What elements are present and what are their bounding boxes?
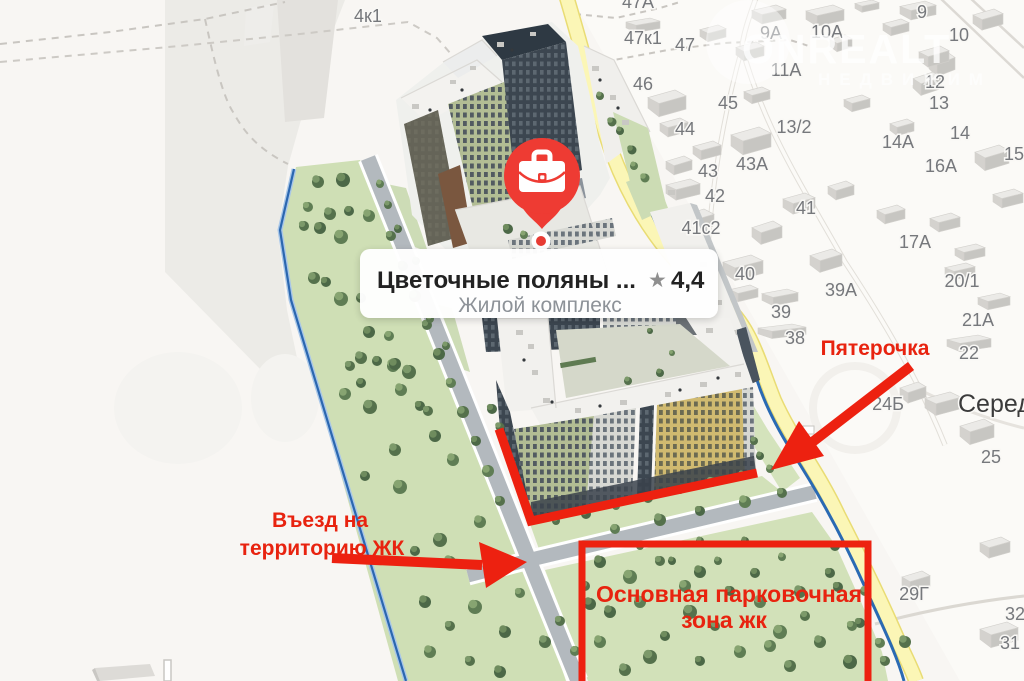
svg-text:13/2: 13/2	[776, 117, 811, 137]
svg-text:4к1: 4к1	[354, 6, 382, 26]
svg-text:территорию ЖК: территорию ЖК	[240, 537, 405, 560]
svg-text:41: 41	[796, 198, 816, 218]
svg-text:43А: 43А	[736, 154, 768, 174]
svg-text:10: 10	[949, 25, 969, 45]
svg-text:НЕДВИЖИМ: НЕДВИЖИМ	[818, 70, 992, 89]
svg-text:29Г: 29Г	[899, 584, 929, 604]
svg-text:Середне: Середне	[958, 390, 1024, 418]
svg-text:42: 42	[705, 186, 725, 206]
svg-text:зона жк: зона жк	[681, 607, 767, 633]
svg-text:15: 15	[1004, 144, 1024, 164]
svg-text:31: 31	[1000, 633, 1020, 653]
svg-text:13: 13	[929, 93, 949, 113]
svg-text:9: 9	[917, 2, 927, 22]
svg-text:41с2: 41с2	[681, 218, 720, 238]
svg-text:25: 25	[981, 447, 1001, 467]
svg-text:Жилой комплекс: Жилой комплекс	[458, 294, 622, 317]
svg-text:43: 43	[698, 161, 718, 181]
svg-text:39: 39	[771, 302, 791, 322]
svg-text:46: 46	[633, 74, 653, 94]
svg-text:17А: 17А	[899, 232, 931, 252]
svg-text:14: 14	[950, 123, 970, 143]
svg-text:Въезд на: Въезд на	[272, 509, 368, 532]
svg-text:21А: 21А	[962, 310, 994, 330]
svg-text:38: 38	[785, 328, 805, 348]
svg-text:16А: 16А	[925, 156, 957, 176]
svg-text:14А: 14А	[882, 132, 914, 152]
svg-text:ONREALT: ONREALT	[742, 26, 951, 72]
svg-text:40: 40	[735, 264, 755, 284]
svg-text:Цветочные поляны ...: Цветочные поляны ...	[377, 267, 636, 294]
svg-text:32: 32	[1005, 604, 1024, 624]
svg-text:47к1: 47к1	[624, 28, 662, 48]
svg-text:Пятерочка: Пятерочка	[821, 337, 930, 360]
svg-text:20/1: 20/1	[944, 271, 979, 291]
svg-text:44: 44	[675, 119, 695, 139]
svg-text:47: 47	[675, 35, 695, 55]
svg-text:★: ★	[648, 269, 667, 292]
svg-text:47А: 47А	[622, 0, 654, 12]
svg-text:Основная парковочная: Основная парковочная	[596, 581, 862, 607]
svg-text:22: 22	[959, 343, 979, 363]
svg-text:45: 45	[718, 93, 738, 113]
svg-text:4,4: 4,4	[671, 267, 705, 294]
svg-text:39А: 39А	[825, 280, 857, 300]
